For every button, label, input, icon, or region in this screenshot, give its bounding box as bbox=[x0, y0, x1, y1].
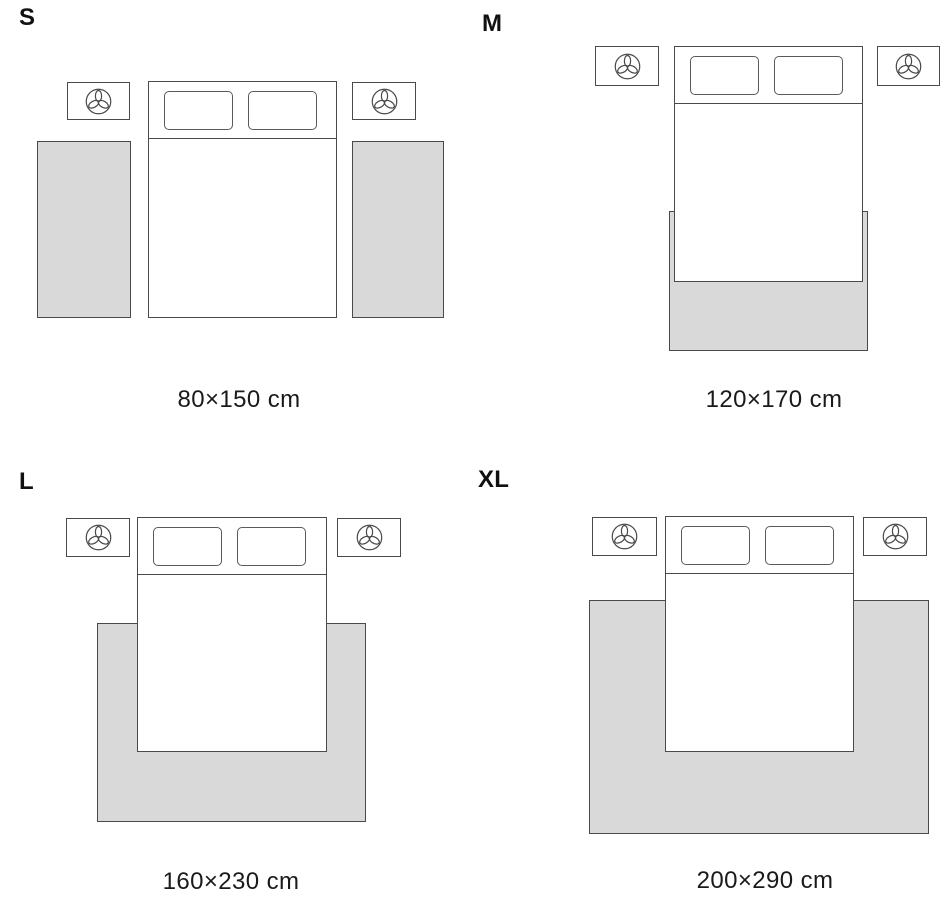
size-caption-s: 80×150 cm bbox=[109, 388, 369, 412]
plant-icon bbox=[612, 51, 643, 82]
pillow-left bbox=[153, 527, 222, 566]
size-panel-m: M 120×170 cm bbox=[475, 0, 950, 450]
size-caption-xl: 200×290 cm bbox=[635, 869, 895, 893]
size-caption-m: 120×170 cm bbox=[644, 388, 904, 412]
bed-headboard-line bbox=[675, 103, 862, 104]
size-caption-l: 160×230 cm bbox=[101, 870, 361, 894]
bed bbox=[665, 516, 854, 752]
nightstand-left bbox=[592, 517, 657, 556]
size-panel-l: L 160×230 cm bbox=[0, 450, 475, 900]
nightstand-left bbox=[67, 82, 130, 120]
bed bbox=[148, 81, 337, 318]
nightstand-right bbox=[337, 518, 401, 557]
size-label-s: S bbox=[19, 6, 35, 30]
size-panel-xl: XL 200×290 cm bbox=[475, 450, 950, 900]
pillow-right bbox=[237, 527, 306, 566]
nightstand-left bbox=[66, 518, 130, 557]
pillow-left bbox=[690, 56, 759, 95]
rug-right-runner bbox=[352, 141, 444, 318]
nightstand-right bbox=[863, 517, 927, 556]
size-label-m: M bbox=[482, 12, 502, 36]
nightstand-right bbox=[352, 82, 416, 120]
bed bbox=[674, 46, 863, 282]
pillow-left bbox=[681, 526, 750, 565]
bed-headboard-line bbox=[138, 574, 326, 575]
rug-left-runner bbox=[37, 141, 131, 318]
plant-icon bbox=[880, 521, 911, 552]
plant-icon bbox=[893, 51, 924, 82]
plant-icon bbox=[609, 521, 640, 552]
plant-icon bbox=[83, 522, 114, 553]
nightstand-right bbox=[877, 46, 940, 86]
pillow-left bbox=[164, 91, 233, 130]
plant-icon bbox=[83, 86, 114, 117]
rug-size-guide: S 80×150 cm M bbox=[0, 0, 950, 900]
size-panel-s: S 80×150 cm bbox=[0, 0, 475, 450]
pillow-right bbox=[248, 91, 317, 130]
pillow-right bbox=[774, 56, 843, 95]
plant-icon bbox=[354, 522, 385, 553]
pillow-right bbox=[765, 526, 834, 565]
bed-headboard-line bbox=[149, 138, 336, 139]
size-label-l: L bbox=[19, 470, 34, 494]
nightstand-left bbox=[595, 46, 659, 86]
bed bbox=[137, 517, 327, 752]
size-label-xl: XL bbox=[478, 468, 509, 492]
bed-headboard-line bbox=[666, 573, 853, 574]
plant-icon bbox=[369, 86, 400, 117]
